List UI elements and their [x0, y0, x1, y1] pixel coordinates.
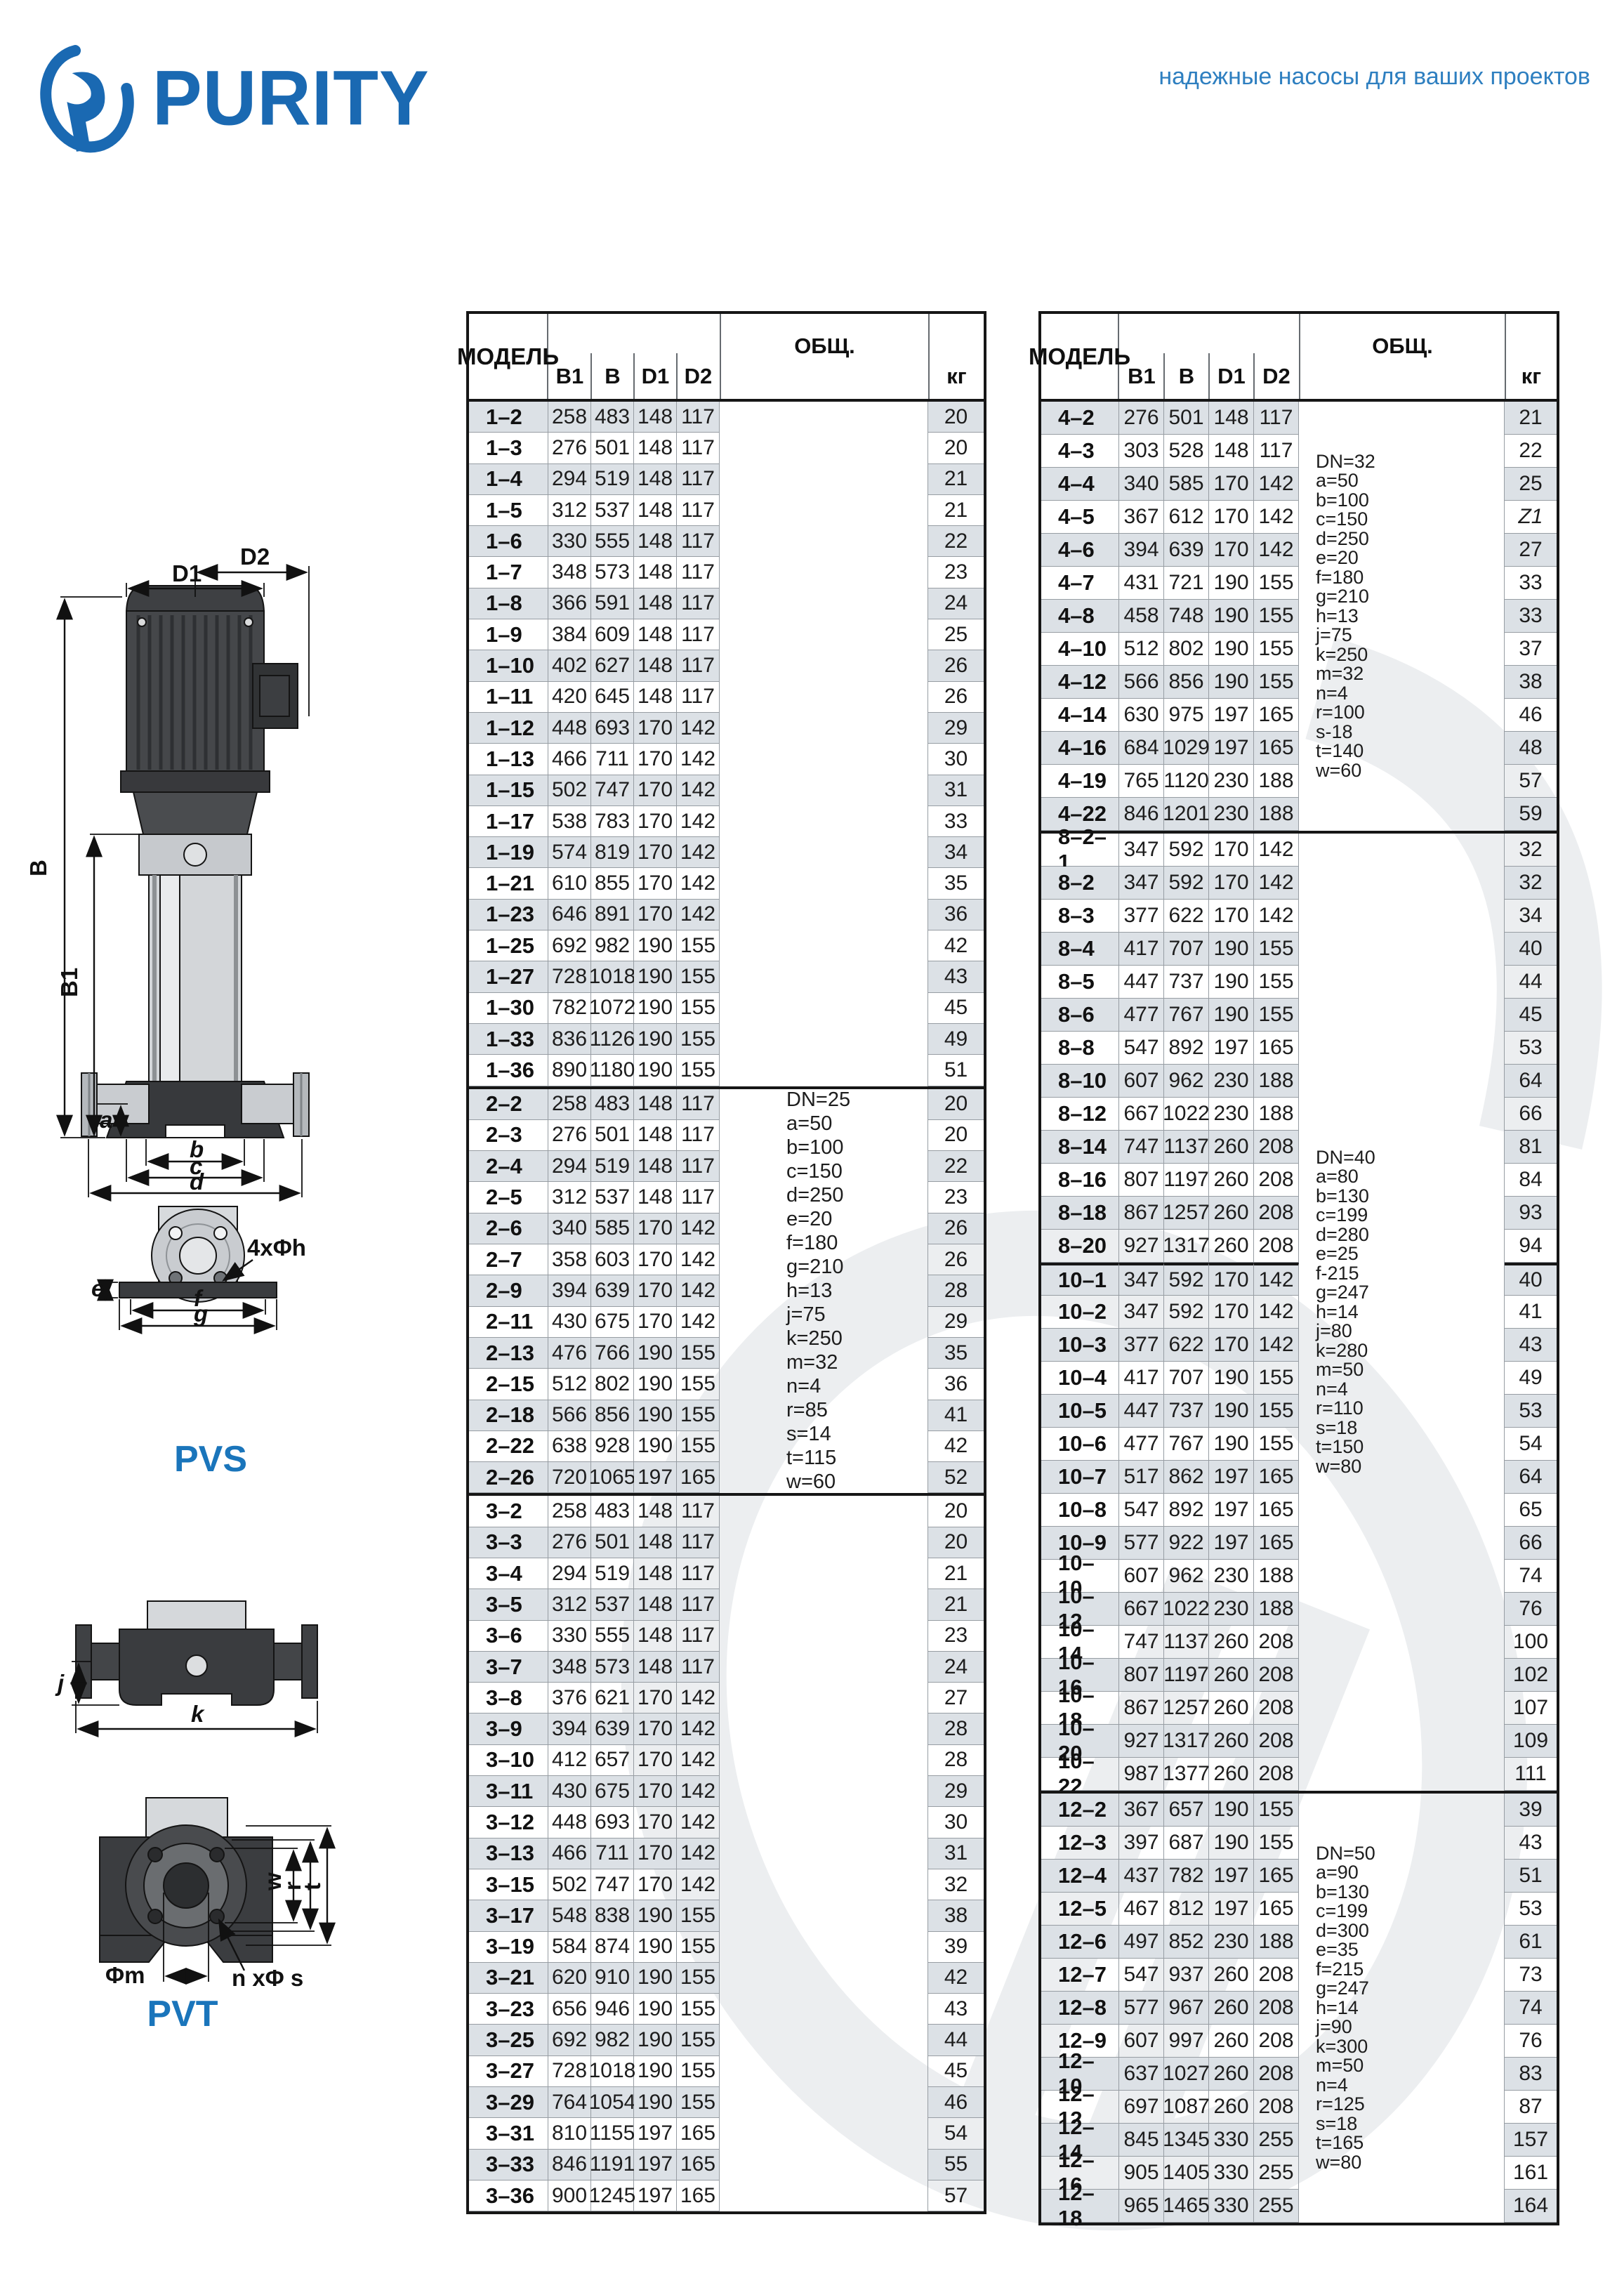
kg-cell: 93	[1505, 1197, 1557, 1230]
model-cell: 1–8	[469, 588, 548, 619]
kg-cell: 33	[1505, 567, 1557, 600]
kg-cell: 74	[1505, 1560, 1557, 1593]
kg-cell: 40	[1505, 933, 1557, 966]
kg-cell: 20	[928, 1089, 984, 1120]
d2-cell: 155	[677, 1994, 720, 2025]
d2-cell: 208	[1254, 1197, 1299, 1230]
b1-cell: 477	[1119, 1428, 1164, 1461]
kg-cell: 27	[1505, 534, 1557, 567]
dim-b1-label: B1	[56, 968, 82, 997]
b-cell: 603	[591, 1244, 634, 1275]
kg-cell: 66	[1505, 1098, 1557, 1131]
d2-cell: 117	[677, 1151, 720, 1182]
b-cell: 519	[591, 464, 634, 495]
d1-cell: 148	[634, 557, 677, 588]
b-cell: 528	[1164, 435, 1209, 468]
b-cell: 891	[591, 900, 634, 930]
d1-cell: 197	[634, 2118, 677, 2149]
d2-cell: 117	[677, 1527, 720, 1558]
kg-cell: 107	[1505, 1692, 1557, 1725]
model-cell: 3–12	[469, 1807, 548, 1838]
model-cell: 12–5	[1041, 1893, 1119, 1926]
d1-cell: 260	[1209, 1725, 1254, 1758]
d1-cell: 148	[634, 495, 677, 526]
kg-cell: 26	[928, 650, 984, 681]
dim-d-label: d	[190, 1169, 204, 1195]
model-cell: 4–3	[1041, 435, 1119, 468]
d2-cell: 155	[1254, 1395, 1299, 1428]
d2-cell: 155	[1254, 1827, 1299, 1860]
d1-cell: 260	[1209, 1692, 1254, 1725]
b1-cell: 448	[548, 713, 591, 744]
kg-cell: 34	[928, 837, 984, 868]
b1-cell: 367	[1119, 501, 1164, 534]
model-cell: 8–16	[1041, 1164, 1119, 1197]
note-line: r=100	[1316, 703, 1504, 723]
d1-cell: 170	[634, 1307, 677, 1338]
b1-cell: 348	[548, 1652, 591, 1683]
b1-cell: 476	[548, 1338, 591, 1369]
b-cell: 1137	[1164, 1626, 1209, 1659]
b-cell: 501	[1164, 402, 1209, 435]
kg-cell: 21	[1505, 402, 1557, 435]
kg-cell: 22	[1505, 435, 1557, 468]
note-line: b=100	[786, 1136, 927, 1159]
b1-cell: 377	[1119, 1329, 1164, 1362]
d1-cell: 197	[634, 2180, 677, 2211]
pvs-side-view	[81, 566, 309, 1138]
note-line: w=60	[1316, 761, 1504, 781]
kg-cell: 32	[1505, 867, 1557, 900]
d1-cell: 148	[634, 1496, 677, 1527]
kg-cell: 20	[928, 1496, 984, 1527]
d2-cell: 142	[677, 713, 720, 744]
b-cell: 946	[591, 1994, 634, 2025]
d1-cell: 170	[634, 1683, 677, 1713]
d1-cell: 190	[634, 1024, 677, 1055]
b-cell: 838	[591, 1900, 634, 1931]
b1-cell: 547	[1119, 1959, 1164, 1992]
b1-cell: 987	[1119, 1758, 1164, 1791]
note-line: j=75	[786, 1303, 927, 1327]
b-cell: 721	[1164, 567, 1209, 600]
b1-cell: 747	[1119, 1131, 1164, 1164]
b1-cell: 458	[1119, 600, 1164, 633]
kg-cell: 53	[1505, 1395, 1557, 1428]
d2-cell: 142	[677, 1244, 720, 1275]
d1-cell: 170	[634, 900, 677, 930]
kg-cell: 20	[928, 433, 984, 463]
d2-cell: 142	[1254, 501, 1299, 534]
b-cell: 592	[1164, 1263, 1209, 1296]
model-cell: 12–4	[1041, 1860, 1119, 1893]
brand-name: PURITY	[152, 55, 430, 143]
d2-cell: 165	[1254, 1893, 1299, 1926]
model-cell: 2–4	[469, 1151, 548, 1182]
d1-cell: 170	[634, 713, 677, 744]
model-cell: 4–4	[1041, 468, 1119, 501]
b1-cell: 397	[1119, 1827, 1164, 1860]
d2-cell: 117	[677, 1182, 720, 1213]
d2-cell: 142	[677, 806, 720, 837]
d2-cell: 142	[677, 837, 720, 868]
d2-cell: 117	[677, 402, 720, 433]
note-line: a=50	[1316, 471, 1504, 491]
model-cell: 8–14	[1041, 1131, 1119, 1164]
b-cell: 555	[591, 1621, 634, 1652]
b1-cell: 448	[548, 1807, 591, 1838]
note-line: w=80	[1316, 2153, 1504, 2173]
d1-cell: 260	[1209, 2058, 1254, 2091]
d1-cell: 190	[1209, 633, 1254, 666]
b1-cell: 607	[1119, 1065, 1164, 1098]
kg-cell: 34	[1505, 900, 1557, 933]
model-cell: 8–3	[1041, 900, 1119, 933]
note-line: h=13	[1316, 607, 1504, 626]
kg-cell: 25	[928, 619, 984, 650]
kg-cell: 45	[928, 993, 984, 1024]
b-cell: 967	[1164, 1992, 1209, 2025]
d1-cell: 170	[1209, 900, 1254, 933]
b-cell: 612	[1164, 501, 1209, 534]
d1-cell: 148	[634, 1558, 677, 1589]
dim-d1-label: D1	[172, 560, 202, 586]
d2-cell: 165	[677, 1462, 720, 1493]
d1-cell: 148	[634, 1527, 677, 1558]
d1-cell: 170	[1209, 1296, 1254, 1329]
kg-cell: 83	[1505, 2058, 1557, 2091]
model-cell: 4–14	[1041, 699, 1119, 732]
b1-cell: 258	[548, 1089, 591, 1120]
b-cell: 892	[1164, 1032, 1209, 1065]
model-cell: 3–11	[469, 1776, 548, 1807]
b1-cell: 512	[1119, 633, 1164, 666]
b-cell: 609	[591, 619, 634, 650]
model-cell: 8–10	[1041, 1065, 1119, 1098]
b1-cell: 276	[548, 433, 591, 463]
kg-cell: 26	[928, 1213, 984, 1244]
model-cell: 3–6	[469, 1621, 548, 1652]
d2-cell: 165	[1254, 1527, 1299, 1560]
d2-cell: 155	[1254, 600, 1299, 633]
b1-cell: 412	[548, 1745, 591, 1776]
model-cell: 2–15	[469, 1369, 548, 1400]
b-cell: 537	[591, 495, 634, 526]
model-cell: 2–11	[469, 1307, 548, 1338]
b1-cell: 547	[1119, 1032, 1164, 1065]
kg-cell: 42	[928, 1431, 984, 1462]
model-cell: 1–10	[469, 650, 548, 681]
kg-cell: 39	[928, 1932, 984, 1963]
note-line: m=32	[786, 1350, 927, 1374]
purity-logo-icon	[29, 41, 145, 157]
b-cell: 767	[1164, 1428, 1209, 1461]
d2-cell: 142	[1254, 468, 1299, 501]
d2-cell: 155	[677, 1932, 720, 1963]
model-cell: 1–5	[469, 495, 548, 526]
note-line: n=4	[1316, 1380, 1504, 1400]
d2-cell: 117	[677, 588, 720, 619]
d1-cell: 148	[634, 402, 677, 433]
d2-cell: 208	[1254, 1692, 1299, 1725]
d1-cell: 260	[1209, 1992, 1254, 2025]
b-cell: 802	[1164, 633, 1209, 666]
d1-cell: 170	[1209, 1329, 1254, 1362]
d2-cell: 165	[1254, 1461, 1299, 1494]
b-cell: 711	[591, 1838, 634, 1869]
kg-cell: 64	[1505, 1065, 1557, 1098]
b-cell: 1027	[1164, 2058, 1209, 2091]
b-cell: 711	[591, 744, 634, 775]
b1-cell: 312	[548, 1589, 591, 1620]
kg-cell: 36	[928, 1369, 984, 1400]
b-cell: 483	[591, 1089, 634, 1120]
section-dimension-notes	[720, 402, 928, 1086]
note-line: j=90	[1316, 2018, 1504, 2037]
d1-cell: 170	[634, 868, 677, 899]
b1-cell: 330	[548, 1621, 591, 1652]
b-cell: 1465	[1164, 2190, 1209, 2223]
column-header-obsh: ОБЩ.	[1299, 314, 1505, 399]
d1-cell: 190	[634, 1369, 677, 1400]
d1-cell: 230	[1209, 1065, 1254, 1098]
d2-cell: 208	[1254, 1131, 1299, 1164]
column-header-d2: D2	[677, 314, 720, 399]
d1-cell: 260	[1209, 2025, 1254, 2058]
b1-cell: 376	[548, 1683, 591, 1713]
d1-cell: 148	[634, 1621, 677, 1652]
kg-cell: 24	[928, 588, 984, 619]
d2-cell: 155	[677, 2025, 720, 2055]
model-cell: 4–5	[1041, 501, 1119, 534]
b1-cell: 431	[1119, 567, 1164, 600]
d1-cell: 148	[634, 526, 677, 557]
d1-cell: 190	[1209, 966, 1254, 999]
column-header-model: МОДЕЛЬ	[1041, 314, 1119, 399]
d2-cell: 142	[1254, 867, 1299, 900]
b-cell: 573	[591, 557, 634, 588]
d2-cell: 142	[677, 1713, 720, 1744]
kg-cell: 76	[1505, 1593, 1557, 1626]
d2-cell: 142	[1254, 900, 1299, 933]
b-cell: 627	[591, 650, 634, 681]
model-cell: 12–3	[1041, 1827, 1119, 1860]
b1-cell: 807	[1119, 1164, 1164, 1197]
d1-cell: 330	[1209, 2124, 1254, 2157]
kg-cell: 31	[928, 775, 984, 806]
d2-cell: 142	[677, 775, 720, 806]
d1-cell: 170	[1209, 534, 1254, 567]
d2-cell: 142	[677, 1275, 720, 1306]
d1-cell: 148	[634, 464, 677, 495]
b-cell: 519	[591, 1558, 634, 1589]
d1-cell: 190	[634, 2087, 677, 2118]
b1-cell: 728	[548, 2056, 591, 2087]
model-cell: 12–2	[1041, 1794, 1119, 1827]
model-cell: 10–4	[1041, 1362, 1119, 1395]
b-cell: 1180	[591, 1055, 634, 1086]
model-cell: 3–23	[469, 1994, 548, 2025]
d1-cell: 170	[634, 1275, 677, 1306]
d1-cell: 148	[634, 650, 677, 681]
kg-cell: 26	[928, 682, 984, 713]
table-section: 8–2–1347592170142328–2347592170142328–33…	[1041, 831, 1557, 1791]
model-cell: 4–16	[1041, 732, 1119, 765]
b1-cell: 437	[1119, 1860, 1164, 1893]
kg-cell: 42	[928, 1963, 984, 1994]
pvs-base-view	[76, 1601, 317, 1705]
b-cell: 855	[591, 868, 634, 899]
model-cell: 2–9	[469, 1275, 548, 1306]
kg-cell: 102	[1505, 1659, 1557, 1692]
kg-cell: 32	[1505, 834, 1557, 867]
kg-cell: 59	[1505, 798, 1557, 831]
d2-cell: 142	[1254, 834, 1299, 867]
model-cell: 3–29	[469, 2087, 548, 2118]
b-cell: 962	[1164, 1560, 1209, 1593]
d2-cell: 165	[1254, 1032, 1299, 1065]
note-line: n=4	[1316, 684, 1504, 704]
b1-cell: 684	[1119, 732, 1164, 765]
b1-cell: 577	[1119, 1527, 1164, 1560]
kg-cell: 27	[928, 1683, 984, 1713]
b-cell: 962	[1164, 1065, 1209, 1098]
b-cell: 1345	[1164, 2124, 1209, 2157]
d1-cell: 148	[634, 1652, 677, 1683]
model-cell: 4–10	[1041, 633, 1119, 666]
b1-cell: 728	[548, 961, 591, 992]
b-cell: 747	[591, 775, 634, 806]
kg-cell: 38	[928, 1900, 984, 1931]
kg-cell: 51	[1505, 1860, 1557, 1893]
b1-cell: 312	[548, 1182, 591, 1213]
d2-cell: 155	[677, 1431, 720, 1462]
d2-cell: 155	[677, 1369, 720, 1400]
note-line: d=280	[1316, 1225, 1504, 1245]
b-cell: 1022	[1164, 1593, 1209, 1626]
b-cell: 766	[591, 1338, 634, 1369]
kg-cell: 36	[928, 900, 984, 930]
column-header-b: B	[591, 314, 634, 399]
b1-cell: 394	[548, 1713, 591, 1744]
kg-cell: 21	[928, 1589, 984, 1620]
b-cell: 501	[591, 1527, 634, 1558]
d1-cell: 230	[1209, 1560, 1254, 1593]
b-cell: 922	[1164, 1527, 1209, 1560]
d2-cell: 255	[1254, 2124, 1299, 2157]
b1-cell: 867	[1119, 1197, 1164, 1230]
kg-cell: 53	[1505, 1032, 1557, 1065]
kg-cell: 22	[928, 526, 984, 557]
d1-cell: 170	[634, 1838, 677, 1869]
b-cell: 937	[1164, 1959, 1209, 1992]
kg-cell: 74	[1505, 1992, 1557, 2025]
b-cell: 737	[1164, 1395, 1209, 1428]
b1-cell: 312	[548, 495, 591, 526]
pump-drawings: D2 D1 B B1 a b c d e f g 4xΦh	[21, 548, 351, 2065]
model-cell: 1–17	[469, 806, 548, 837]
d2-cell: 208	[1254, 1164, 1299, 1197]
d2-cell: 155	[1254, 933, 1299, 966]
note-line: h=13	[786, 1279, 927, 1303]
d1-cell: 148	[634, 1120, 677, 1151]
kg-cell: 51	[928, 1055, 984, 1086]
note-line: h=14	[1316, 1999, 1504, 2018]
d1-cell: 170	[634, 1807, 677, 1838]
b1-cell: 846	[1119, 798, 1164, 831]
d2-cell: 117	[677, 1558, 720, 1589]
kg-cell: 44	[1505, 966, 1557, 999]
note-line: e=25	[1316, 1244, 1504, 1264]
d1-cell: 260	[1209, 1131, 1254, 1164]
b-cell: 1018	[591, 2056, 634, 2087]
d1-cell: 230	[1209, 765, 1254, 798]
b1-cell: 807	[1119, 1659, 1164, 1692]
b1-cell: 697	[1119, 2091, 1164, 2124]
b-cell: 675	[591, 1776, 634, 1807]
d1-cell: 190	[634, 1900, 677, 1931]
column-header-b1: B1	[1119, 314, 1164, 399]
dim-4xfh-label: 4xΦh	[247, 1235, 306, 1261]
b-cell: 982	[591, 2025, 634, 2055]
column-header-obsh: ОБЩ.	[720, 314, 928, 399]
d1-cell: 148	[1209, 435, 1254, 468]
note-line: t=165	[1316, 2133, 1504, 2153]
note-line: b=130	[1316, 1883, 1504, 1902]
b-cell: 910	[591, 1963, 634, 1994]
b1-cell: 538	[548, 806, 591, 837]
b1-cell: 517	[1119, 1461, 1164, 1494]
d2-cell: 117	[677, 557, 720, 588]
brand-logo: PURITY	[29, 41, 430, 157]
model-cell: 1–15	[469, 775, 548, 806]
b-cell: 693	[591, 1807, 634, 1838]
model-cell: 10–5	[1041, 1395, 1119, 1428]
d2-cell: 155	[677, 993, 720, 1024]
b1-cell: 845	[1119, 2124, 1164, 2157]
kg-cell: 49	[1505, 1362, 1557, 1395]
model-cell: 4–12	[1041, 666, 1119, 699]
d2-cell: 142	[677, 1745, 720, 1776]
kg-cell: 28	[928, 1275, 984, 1306]
note-line: m=32	[1316, 664, 1504, 684]
d1-cell: 190	[634, 1932, 677, 1963]
model-cell: 1–9	[469, 619, 548, 650]
d1-cell: 190	[1209, 1362, 1254, 1395]
note-line: DN=32	[1316, 452, 1504, 472]
b1-cell: 258	[548, 1496, 591, 1527]
d2-cell: 117	[677, 464, 720, 495]
d1-cell: 330	[1209, 2190, 1254, 2223]
dim-j-label: j	[55, 1670, 65, 1696]
model-cell: 8–2	[1041, 867, 1119, 900]
b1-cell: 810	[548, 2118, 591, 2149]
column-header-model: МОДЕЛЬ	[469, 314, 548, 399]
b1-cell: 348	[548, 557, 591, 588]
d1-cell: 190	[1209, 567, 1254, 600]
note-line: s=18	[1316, 1419, 1504, 1438]
b-cell: 874	[591, 1932, 634, 1963]
d2-cell: 155	[677, 2056, 720, 2087]
b-cell: 812	[1164, 1893, 1209, 1926]
b1-cell: 637	[1119, 2058, 1164, 2091]
model-cell: 3–5	[469, 1589, 548, 1620]
b-cell: 1054	[591, 2087, 634, 2118]
d2-cell: 155	[677, 1400, 720, 1431]
d2-cell: 188	[1254, 798, 1299, 831]
d2-cell: 208	[1254, 1758, 1299, 1791]
note-line: f=180	[786, 1231, 927, 1255]
